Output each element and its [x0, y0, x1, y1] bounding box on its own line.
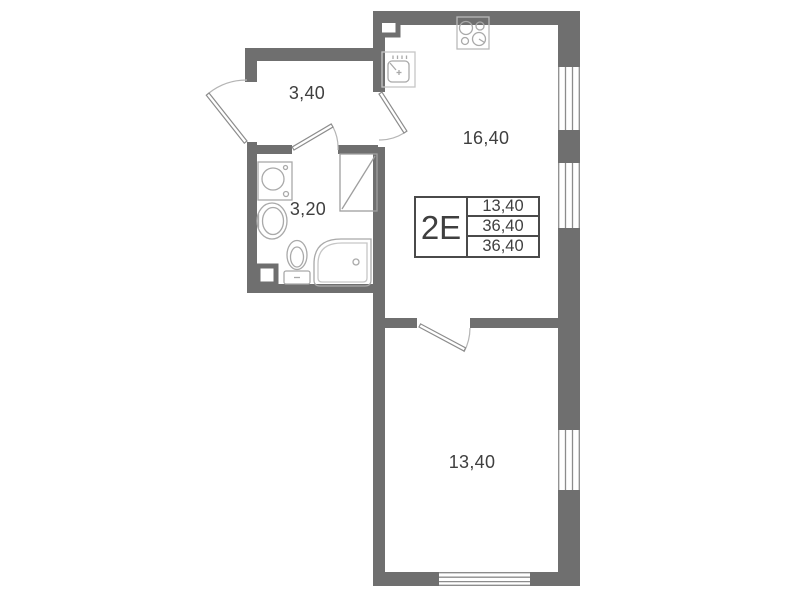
wall-bath-top-a: [247, 145, 292, 154]
wall-bottom-left: [373, 572, 439, 586]
vent-shaft-kitchen: [382, 23, 398, 35]
wall-bath-top-b: [338, 145, 378, 154]
unit-total-area: 36,40: [468, 237, 538, 256]
entrance-door-leaf: [206, 93, 247, 143]
kitchen-living-area-label: 16,40: [441, 129, 531, 147]
hall-kitchen-door-leaf: [379, 92, 407, 133]
unit-living-area: 13,40: [468, 198, 538, 217]
unit-area: 36,40: [468, 217, 538, 236]
wall-right-pier: [558, 130, 580, 163]
wall-hall-left-stub: [245, 48, 257, 82]
wall-bottom-right: [530, 572, 580, 586]
window-kitchen-2: [558, 163, 580, 228]
bedroom-door: [419, 324, 470, 352]
floor-plan-drawing: [0, 0, 799, 600]
wall-right-middle: [558, 228, 580, 430]
hall-kitchen-door: [379, 92, 407, 140]
window-bedroom-bottom: [439, 572, 530, 586]
bathroom-door-leaf: [292, 124, 333, 150]
wall-partition-right: [470, 318, 558, 328]
vent-shaft-bathroom: [258, 266, 276, 284]
window-bedroom-side: [558, 430, 580, 490]
floor-plan: 3,40 3,20 16,40 13,40 2Е 13,40 36,40 36,…: [0, 0, 799, 600]
kitchen-sink-icon: [382, 52, 415, 87]
corner-bathtub-icon: [314, 239, 371, 286]
wall-partition-left: [373, 318, 417, 328]
wall-right-upper: [558, 11, 580, 69]
entrance-door: [206, 80, 247, 143]
bathroom-door: [292, 124, 338, 150]
washing-machine-icon: [258, 162, 292, 200]
bathroom-area-label: 3,20: [263, 200, 353, 218]
hallway-area-label: 3,40: [262, 84, 352, 102]
toilet-icon: [284, 241, 310, 285]
bathroom-door-arc: [333, 127, 338, 150]
unit-type-label: 2Е: [416, 198, 468, 256]
bedroom-door-leaf: [419, 324, 466, 351]
hall-kitchen-door-arc: [379, 133, 404, 140]
entrance-door-arc: [209, 80, 247, 93]
wall-top: [373, 11, 580, 25]
wall-hall-top: [245, 48, 385, 61]
window-kitchen-1: [558, 67, 580, 130]
bedroom-area-label: 13,40: [427, 453, 517, 471]
unit-info-table: 2Е 13,40 36,40 36,40: [414, 196, 540, 258]
wall-right-lower: [558, 490, 580, 586]
